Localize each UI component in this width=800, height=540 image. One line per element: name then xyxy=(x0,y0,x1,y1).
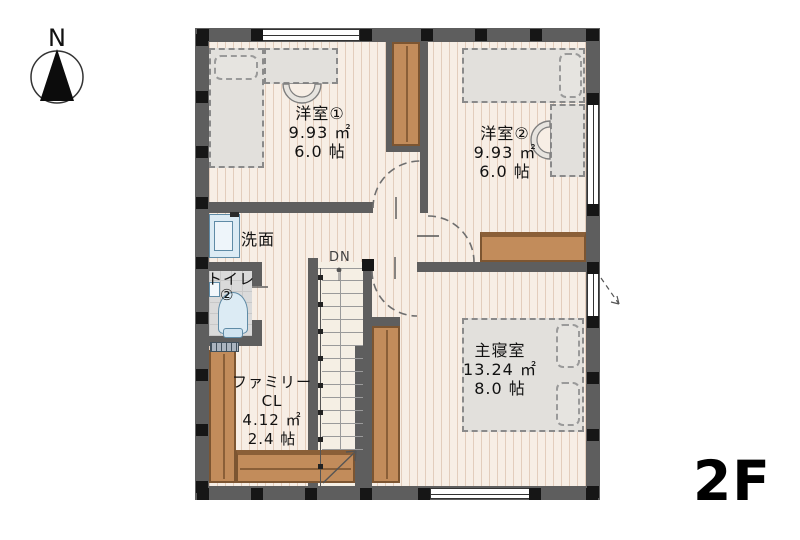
floor-number-label: 2F xyxy=(693,449,771,513)
pillar xyxy=(587,429,599,441)
family-closet-label: ファミリー CL 4.12 ㎡ 2.4 帖 xyxy=(212,373,332,449)
page-background: { "compass": { "label": "N" }, "floor_la… xyxy=(0,0,800,540)
pillar xyxy=(587,93,599,105)
pillar xyxy=(587,204,599,216)
master-area-m2: 13.24 ㎡ xyxy=(425,360,575,379)
room1-area-m2: 9.93 ㎡ xyxy=(245,123,395,142)
pillar xyxy=(251,488,263,500)
pillar xyxy=(305,488,317,500)
pillar xyxy=(251,29,263,41)
pillar xyxy=(360,488,372,500)
room2-area-jo: 6.0 帖 xyxy=(430,162,580,181)
master-area-jo: 8.0 帖 xyxy=(425,379,575,398)
pillar xyxy=(197,488,209,500)
washroom-label: 洗面 xyxy=(241,226,275,250)
pillar-layer xyxy=(0,0,800,540)
pillar xyxy=(362,259,374,271)
pillar xyxy=(196,34,208,46)
family-closet-name-2: CL xyxy=(212,392,332,411)
stairs-dn-label: DN xyxy=(329,250,351,265)
family-closet-name-1: ファミリー xyxy=(212,373,332,392)
family-closet-area-m2: 4.12 ㎡ xyxy=(212,411,332,430)
toilet-number: ② xyxy=(220,286,234,304)
pillar xyxy=(587,29,599,41)
room2-area-m2: 9.93 ㎡ xyxy=(430,143,580,162)
pillar xyxy=(196,197,208,209)
pillar xyxy=(421,29,433,41)
family-closet-area-jo: 2.4 帖 xyxy=(212,430,332,449)
pillar xyxy=(196,369,208,381)
pillar xyxy=(196,146,208,158)
pillar xyxy=(196,312,208,324)
room1-name: 洋室① xyxy=(245,104,395,123)
master-name: 主寝室 xyxy=(425,341,575,360)
pillar xyxy=(475,29,487,41)
pillar xyxy=(587,316,599,328)
room1-area-jo: 6.0 帖 xyxy=(245,142,395,161)
pillar xyxy=(530,29,542,41)
room2-label: 洋室② 9.93 ㎡ 6.0 帖 xyxy=(430,124,580,181)
pillar xyxy=(360,29,372,41)
floor-plan: 洋室① 9.93 ㎡ 6.0 帖 洋室② 9.93 ㎡ 6.0 帖 主寝室 13… xyxy=(0,0,800,540)
pillar xyxy=(529,488,541,500)
pillar xyxy=(587,372,599,384)
pillar xyxy=(196,91,208,103)
room1-label: 洋室① 9.93 ㎡ 6.0 帖 xyxy=(245,104,395,161)
pillar xyxy=(196,424,208,436)
pillar xyxy=(587,486,599,498)
pillar xyxy=(418,488,430,500)
master-label: 主寝室 13.24 ㎡ 8.0 帖 xyxy=(425,341,575,398)
pillar xyxy=(587,262,599,274)
room2-name: 洋室② xyxy=(430,124,580,143)
